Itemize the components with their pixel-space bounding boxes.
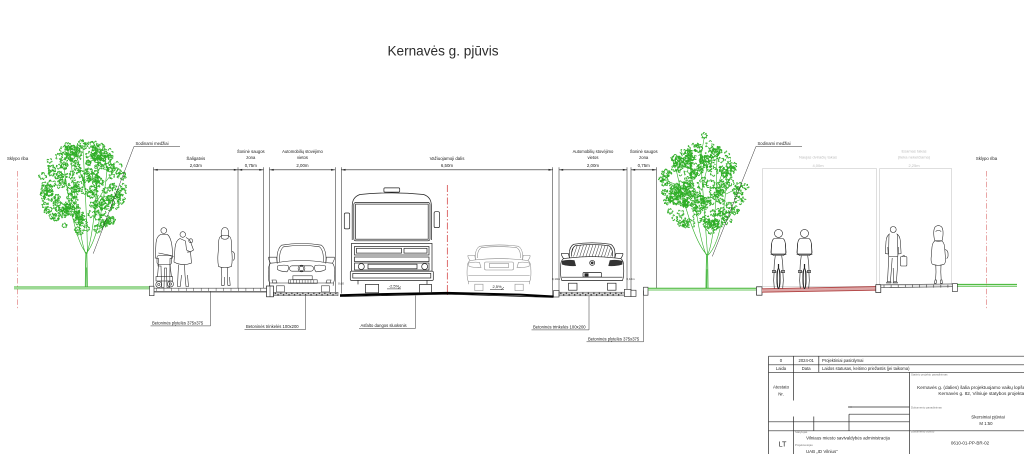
svg-text:0,60: 0,60 <box>338 282 344 286</box>
svg-text:Naujas dviračių takas: Naujas dviračių takas <box>799 155 837 160</box>
svg-text:Sklypo riba: Sklypo riba <box>7 156 29 161</box>
svg-text:Automobilių stovėjimo: Automobilių stovėjimo <box>282 149 323 154</box>
svg-text:Nr.: Nr. <box>778 391 784 396</box>
svg-text:Atestato: Atestato <box>773 384 790 389</box>
svg-text:0,75m: 0,75m <box>638 163 651 168</box>
svg-text:zona: zona <box>639 155 649 160</box>
svg-text:6,50m: 6,50m <box>441 163 454 168</box>
svg-text:Dokumento pavadinimas: Dokumento pavadinimas <box>911 405 942 409</box>
svg-text:LT: LT <box>779 440 787 449</box>
svg-text:0610-01-PP-BR-02: 0610-01-PP-BR-02 <box>951 440 990 445</box>
svg-text:Skersiniai pjūviai: Skersiniai pjūviai <box>971 415 1005 420</box>
svg-text:vietos: vietos <box>588 155 599 160</box>
svg-text:Sodinami medžiai: Sodinami medžiai <box>758 141 791 146</box>
svg-text:0,75m: 0,75m <box>245 163 258 168</box>
svg-text:-2,5%: -2,5% <box>389 283 400 288</box>
svg-text:Šoninė saugos: Šoninė saugos <box>630 149 658 154</box>
svg-text:(lieka nekeičiama): (lieka nekeičiama) <box>898 154 931 159</box>
svg-text:2,63m: 2,63m <box>190 163 203 168</box>
svg-text:Dokumento žymuo: Dokumento žymuo <box>911 430 935 434</box>
svg-text:M 1:50: M 1:50 <box>979 421 993 426</box>
svg-text:Šaligatvis: Šaligatvis <box>186 156 206 161</box>
svg-text:Betoninės trinkelės 100x200: Betoninės trinkelės 100x200 <box>533 325 586 330</box>
svg-text:Automobilių stovėjimo: Automobilių stovėjimo <box>573 149 614 154</box>
svg-text:0,10m: 0,10m <box>552 277 561 281</box>
svg-text:Kernavės g. (dalies) šalia pro: Kernavės g. (dalies) šalia projektuojamo… <box>917 385 1024 390</box>
svg-text:2,25m: 2,25m <box>908 163 920 168</box>
svg-text:4,00m: 4,00m <box>812 163 824 168</box>
svg-text:Šoninė saugos: Šoninė saugos <box>237 149 265 154</box>
svg-text:Data: Data <box>802 366 812 371</box>
svg-text:Statytojas: Statytojas <box>795 430 808 434</box>
svg-text:Kernavės g. 82, Vilniuje staty: Kernavės g. 82, Vilniuje statybos projek… <box>938 391 1024 396</box>
svg-text:Betoninės plytelės 375x375: Betoninės plytelės 375x375 <box>588 336 640 341</box>
svg-text:2,5%: 2,5% <box>492 284 502 289</box>
svg-text:Sodinami medžiai: Sodinami medžiai <box>136 141 169 146</box>
svg-text:Betoninės trinkelės 100x200: Betoninės trinkelės 100x200 <box>246 324 299 329</box>
svg-text:Betoninės plytelės 375x375: Betoninės plytelės 375x375 <box>152 321 204 326</box>
svg-text:2,00m: 2,00m <box>587 163 600 168</box>
svg-text:Laidos statusas, keitimo priež: Laidos statusas, keitimo priežastis (jei… <box>822 366 910 371</box>
svg-text:0,10m: 0,10m <box>626 277 635 281</box>
svg-text:UAB „ID Vilnius“: UAB „ID Vilnius“ <box>806 449 838 454</box>
svg-text:Esamas takas: Esamas takas <box>901 149 926 154</box>
svg-text:2024-01: 2024-01 <box>799 358 815 363</box>
svg-text:Kernavės g. pjūvis: Kernavės g. pjūvis <box>387 44 498 59</box>
svg-text:Projektuotojas: Projektuotojas <box>795 443 813 447</box>
svg-text:Važiuojamoji dalis: Važiuojamoji dalis <box>430 156 466 161</box>
svg-text:Laida: Laida <box>776 366 787 371</box>
svg-text:Asfalto dangos sluoksnis: Asfalto dangos sluoksnis <box>361 323 407 328</box>
svg-text:2,00m: 2,00m <box>296 163 309 168</box>
svg-text:Vilniaus miesto savivaldybės a: Vilniaus miesto savivaldybės administrac… <box>806 436 890 441</box>
svg-text:vietos: vietos <box>297 155 308 160</box>
svg-text:zona: zona <box>246 155 256 160</box>
svg-text:Projektiniai pasiūlymai: Projektiniai pasiūlymai <box>822 358 863 363</box>
svg-text:Statinio projekto pavadinimas: Statinio projekto pavadinimas <box>911 373 948 377</box>
svg-text:Sklypo riba: Sklypo riba <box>976 156 998 161</box>
